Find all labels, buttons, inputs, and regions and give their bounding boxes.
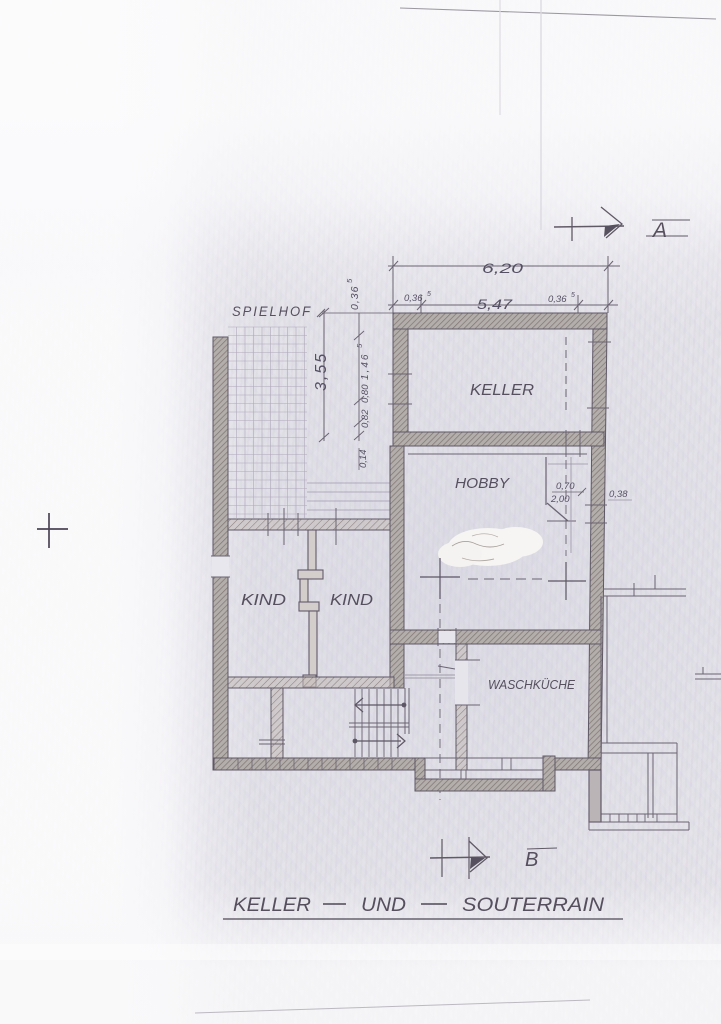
svg-text:0,36: 0,36 <box>349 286 361 310</box>
svg-text:WASCHKÜCHE: WASCHKÜCHE <box>488 677 575 692</box>
svg-text:KELLER: KELLER <box>470 382 534 399</box>
svg-text:SPIELHOF: SPIELHOF <box>232 304 312 319</box>
svg-text:0,14: 0,14 <box>358 450 369 469</box>
svg-text:B: B <box>525 849 538 871</box>
svg-text:0,80: 0,80 <box>360 384 371 403</box>
svg-text:0,36: 0,36 <box>548 294 567 305</box>
svg-text:0,38: 0,38 <box>609 489 628 500</box>
svg-text:A: A <box>651 219 667 242</box>
svg-text:UND: UND <box>361 895 406 916</box>
svg-text:3,55: 3,55 <box>313 352 330 391</box>
svg-text:SOUTERRAIN: SOUTERRAIN <box>462 895 604 916</box>
svg-text:KIND: KIND <box>330 592 373 609</box>
svg-text:HOBBY: HOBBY <box>455 475 510 492</box>
svg-text:0,36: 0,36 <box>404 293 423 304</box>
svg-text:KELLER: KELLER <box>233 895 311 916</box>
svg-text:2,00: 2,00 <box>550 494 570 505</box>
svg-text:5: 5 <box>571 292 575 299</box>
svg-text:0,82: 0,82 <box>360 409 371 428</box>
svg-text:6,20: 6,20 <box>482 261 524 276</box>
svg-text:5: 5 <box>427 291 431 298</box>
svg-text:1,46: 1,46 <box>360 353 371 380</box>
svg-text:5,47: 5,47 <box>477 297 513 312</box>
svg-text:5: 5 <box>355 343 364 348</box>
svg-text:5: 5 <box>345 278 354 283</box>
svg-text:KIND: KIND <box>241 592 287 609</box>
